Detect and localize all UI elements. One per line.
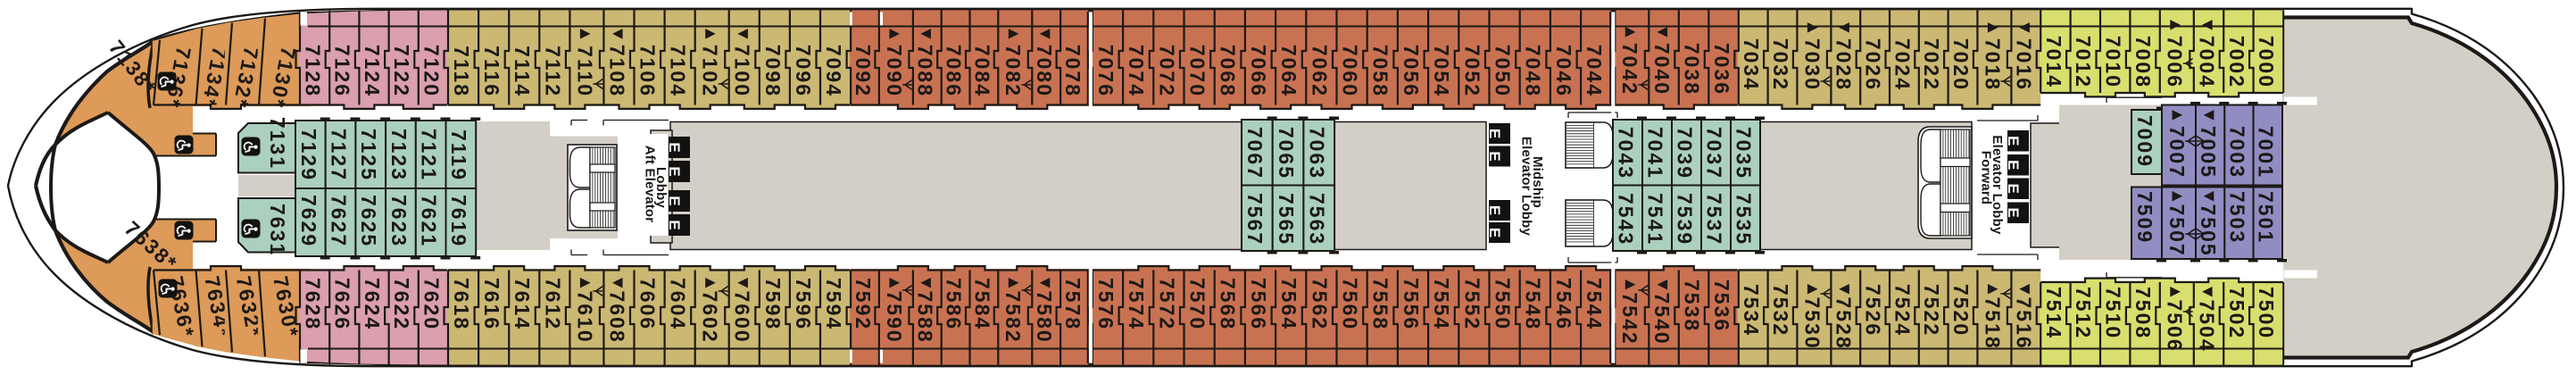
- svg-text:7090: 7090: [883, 45, 906, 97]
- svg-text:7020: 7020: [1949, 38, 1973, 91]
- svg-text:7570: 7570: [1186, 278, 1209, 330]
- svg-text:7588: 7588: [914, 291, 937, 344]
- svg-text:7563: 7563: [1306, 193, 1329, 246]
- svg-text:7121: 7121: [418, 129, 441, 181]
- svg-text:7034: 7034: [1740, 38, 1763, 91]
- svg-text:7558: 7558: [1369, 278, 1392, 330]
- svg-text:7035: 7035: [1732, 127, 1755, 179]
- svg-text:7128: 7128: [302, 45, 325, 97]
- svg-text:7102: 7102: [699, 45, 722, 97]
- svg-text:7631: 7631: [266, 204, 289, 256]
- svg-text:7022: 7022: [1920, 38, 1943, 91]
- svg-text:7503: 7503: [2225, 191, 2248, 244]
- svg-text:7608: 7608: [605, 291, 628, 344]
- svg-text:7537: 7537: [1702, 193, 1725, 246]
- svg-text:7058: 7058: [1369, 45, 1392, 97]
- svg-text:7030: 7030: [1800, 38, 1824, 91]
- svg-text:7067: 7067: [1243, 127, 1267, 179]
- svg-text:7112: 7112: [541, 46, 564, 97]
- svg-text:7535: 7535: [1732, 193, 1755, 246]
- svg-text:7086: 7086: [943, 45, 966, 97]
- svg-text:7000: 7000: [2255, 36, 2278, 88]
- svg-text:7619: 7619: [447, 195, 470, 247]
- svg-text:7118: 7118: [450, 46, 473, 97]
- svg-text:E: E: [1486, 129, 1503, 138]
- svg-text:7584: 7584: [970, 278, 993, 330]
- svg-text:7564: 7564: [1277, 278, 1300, 330]
- svg-text:7508: 7508: [2131, 287, 2155, 339]
- svg-text:7066: 7066: [1247, 45, 1270, 97]
- svg-text:7542: 7542: [1618, 293, 1641, 346]
- svg-text:7010: 7010: [2102, 36, 2125, 88]
- svg-text:7018: 7018: [1981, 38, 2004, 91]
- svg-text:7629: 7629: [297, 195, 320, 247]
- svg-text:E: E: [2005, 160, 2022, 170]
- svg-text:7604: 7604: [667, 278, 690, 330]
- svg-text:7627: 7627: [327, 195, 350, 247]
- svg-text:7054: 7054: [1430, 45, 1453, 97]
- svg-text:7096: 7096: [792, 45, 815, 97]
- svg-text:7598: 7598: [761, 278, 785, 330]
- svg-text:7510: 7510: [2102, 287, 2125, 339]
- svg-text:7554: 7554: [1430, 278, 1453, 330]
- svg-text:7562: 7562: [1308, 278, 1331, 330]
- svg-text:7126: 7126: [331, 45, 354, 97]
- svg-text:7082: 7082: [1001, 45, 1025, 97]
- svg-text:7572: 7572: [1155, 278, 1178, 330]
- svg-text:7104: 7104: [667, 45, 690, 97]
- svg-text:7530: 7530: [1800, 297, 1824, 350]
- svg-text:7044: 7044: [1583, 45, 1606, 97]
- svg-text:7618: 7618: [450, 278, 473, 330]
- svg-text:7065: 7065: [1275, 127, 1298, 179]
- svg-text:7106: 7106: [636, 45, 660, 97]
- svg-text:E: E: [666, 220, 683, 229]
- svg-text:7520: 7520: [1949, 284, 1973, 337]
- svg-text:7624: 7624: [361, 278, 384, 330]
- svg-text:7550: 7550: [1492, 278, 1515, 330]
- svg-text:7524: 7524: [1890, 284, 1914, 337]
- svg-text:7594: 7594: [822, 278, 845, 330]
- svg-text:7500: 7500: [2255, 287, 2278, 339]
- svg-text:7131: 7131: [266, 117, 289, 170]
- svg-text:7072: 7072: [1155, 45, 1178, 97]
- svg-text:7024: 7024: [1890, 38, 1914, 91]
- svg-text:E: E: [2005, 208, 2022, 218]
- svg-text:7046: 7046: [1552, 45, 1575, 97]
- svg-text:7003: 7003: [2225, 126, 2248, 179]
- svg-text:7078: 7078: [1061, 45, 1084, 97]
- svg-text:7552: 7552: [1460, 278, 1483, 330]
- svg-text:7625: 7625: [357, 195, 380, 247]
- svg-text:7129: 7129: [297, 129, 320, 181]
- svg-text:7056: 7056: [1400, 45, 1423, 97]
- svg-text:7062: 7062: [1308, 45, 1331, 97]
- svg-text:7536: 7536: [1710, 279, 1733, 332]
- svg-text:7512: 7512: [2072, 287, 2095, 339]
- svg-text:7543: 7543: [1614, 193, 1637, 246]
- svg-text:7580: 7580: [1033, 291, 1056, 344]
- svg-text:7539: 7539: [1673, 193, 1696, 246]
- svg-text:7622: 7622: [390, 278, 413, 330]
- svg-text:7120: 7120: [420, 45, 443, 97]
- svg-text:7076: 7076: [1094, 45, 1118, 97]
- svg-text:7518: 7518: [1981, 297, 2004, 350]
- svg-text:E: E: [2005, 136, 2022, 146]
- svg-text:7566: 7566: [1247, 278, 1270, 330]
- svg-text:7036: 7036: [1710, 43, 1733, 96]
- svg-text:7100: 7100: [731, 45, 754, 97]
- svg-text:7080: 7080: [1033, 45, 1056, 97]
- svg-text:7522: 7522: [1920, 284, 1943, 337]
- svg-text:7592: 7592: [852, 278, 875, 330]
- svg-text:7532: 7532: [1769, 284, 1792, 337]
- svg-text:7119: 7119: [447, 129, 470, 181]
- svg-text:7526: 7526: [1862, 284, 1885, 337]
- svg-text:7586: 7586: [943, 278, 966, 330]
- svg-text:7070: 7070: [1186, 45, 1209, 97]
- svg-text:7088: 7088: [914, 45, 937, 97]
- svg-text:7028: 7028: [1832, 38, 1856, 91]
- svg-text:7016: 7016: [2013, 38, 2036, 91]
- svg-text:7514: 7514: [2042, 287, 2065, 339]
- svg-text:7037: 7037: [1702, 127, 1725, 179]
- svg-text:Elevator Lobby: Elevator Lobby: [1990, 135, 2005, 235]
- svg-text:7504: 7504: [2195, 300, 2218, 353]
- svg-text:7039: 7039: [1673, 127, 1696, 179]
- svg-text:7502: 7502: [2225, 287, 2248, 339]
- svg-text:7610: 7610: [573, 291, 596, 344]
- svg-text:7124: 7124: [361, 45, 384, 97]
- svg-text:7001: 7001: [2255, 126, 2278, 179]
- svg-text:7002: 7002: [2225, 36, 2248, 88]
- svg-text:7540: 7540: [1650, 293, 1674, 346]
- svg-text:7600: 7600: [731, 291, 754, 344]
- svg-text:7544: 7544: [1583, 278, 1606, 330]
- svg-text:7574: 7574: [1125, 278, 1148, 330]
- svg-text:7620: 7620: [420, 278, 443, 330]
- svg-text:7590: 7590: [883, 291, 906, 344]
- svg-text:Lobby: Lobby: [653, 167, 669, 208]
- svg-text:7060: 7060: [1339, 45, 1362, 97]
- svg-text:7116: 7116: [480, 46, 503, 97]
- svg-text:7040: 7040: [1650, 43, 1674, 96]
- svg-text:7507: 7507: [2165, 204, 2189, 257]
- svg-text:7568: 7568: [1217, 278, 1240, 330]
- svg-text:7084: 7084: [970, 45, 993, 97]
- svg-text:7556: 7556: [1400, 278, 1423, 330]
- svg-text:E: E: [1486, 151, 1503, 161]
- svg-text:7509: 7509: [2133, 191, 2156, 244]
- svg-text:7092: 7092: [852, 45, 875, 97]
- svg-text:7541: 7541: [1643, 193, 1666, 246]
- svg-text:7125: 7125: [357, 129, 380, 181]
- svg-text:7501: 7501: [2255, 191, 2278, 244]
- svg-text:7582: 7582: [1001, 291, 1025, 344]
- svg-text:E: E: [666, 142, 683, 152]
- svg-text:7074: 7074: [1125, 45, 1148, 97]
- svg-text:7063: 7063: [1306, 127, 1329, 179]
- svg-text:7548: 7548: [1522, 278, 1545, 330]
- svg-text:7008: 7008: [2131, 36, 2155, 88]
- svg-text:7052: 7052: [1460, 45, 1483, 97]
- svg-text:7623: 7623: [387, 195, 411, 247]
- svg-text:7621: 7621: [418, 195, 441, 247]
- svg-text:7005: 7005: [2197, 126, 2220, 179]
- svg-text:7098: 7098: [761, 45, 785, 97]
- svg-text:7004: 7004: [2195, 36, 2218, 88]
- svg-text:7110: 7110: [573, 46, 596, 97]
- svg-text:7602: 7602: [699, 291, 722, 344]
- svg-text:E: E: [2005, 184, 2022, 194]
- svg-text:7012: 7012: [2072, 36, 2095, 88]
- svg-text:7567: 7567: [1243, 193, 1267, 246]
- svg-text:7009: 7009: [2133, 115, 2156, 168]
- svg-text:7006: 7006: [2164, 36, 2187, 88]
- svg-text:7050: 7050: [1492, 45, 1515, 97]
- svg-text:7516: 7516: [2013, 297, 2036, 350]
- svg-text:7007: 7007: [2165, 126, 2189, 179]
- svg-text:7068: 7068: [1217, 45, 1240, 97]
- svg-text:7534: 7534: [1740, 284, 1763, 337]
- svg-text:7560: 7560: [1339, 278, 1362, 330]
- svg-text:7026: 7026: [1862, 38, 1885, 91]
- svg-text:7048: 7048: [1522, 45, 1545, 97]
- svg-text:7538: 7538: [1681, 279, 1704, 332]
- svg-text:7528: 7528: [1832, 297, 1856, 350]
- svg-text:7596: 7596: [792, 278, 815, 330]
- svg-text:Elevator Lobby: Elevator Lobby: [1519, 137, 1534, 237]
- svg-text:7506: 7506: [2164, 300, 2187, 353]
- svg-text:7094: 7094: [822, 45, 845, 97]
- svg-text:7614: 7614: [511, 278, 534, 330]
- svg-text:E: E: [1486, 205, 1503, 215]
- svg-text:7064: 7064: [1277, 45, 1300, 97]
- svg-text:7546: 7546: [1552, 278, 1575, 330]
- svg-text:7122: 7122: [390, 45, 413, 97]
- svg-text:7578: 7578: [1061, 278, 1084, 330]
- svg-text:7123: 7123: [387, 129, 411, 181]
- svg-text:7612: 7612: [541, 278, 564, 330]
- svg-text:7108: 7108: [605, 45, 628, 97]
- svg-text:7626: 7626: [331, 278, 354, 330]
- svg-text:E: E: [1486, 228, 1503, 237]
- svg-text:7565: 7565: [1275, 193, 1298, 246]
- svg-text:7114: 7114: [511, 46, 534, 97]
- svg-text:7038: 7038: [1681, 43, 1704, 96]
- svg-text:7043: 7043: [1614, 127, 1637, 179]
- svg-text:7628: 7628: [302, 278, 325, 330]
- svg-text:7616: 7616: [480, 278, 503, 330]
- svg-text:7505: 7505: [2197, 204, 2220, 257]
- svg-text:7032: 7032: [1769, 38, 1792, 91]
- svg-text:7042: 7042: [1618, 43, 1641, 96]
- svg-text:7606: 7606: [636, 278, 660, 330]
- svg-text:7127: 7127: [327, 129, 350, 181]
- svg-text:7041: 7041: [1643, 127, 1666, 179]
- svg-text:7014: 7014: [2042, 36, 2065, 88]
- svg-text:7576: 7576: [1094, 278, 1118, 330]
